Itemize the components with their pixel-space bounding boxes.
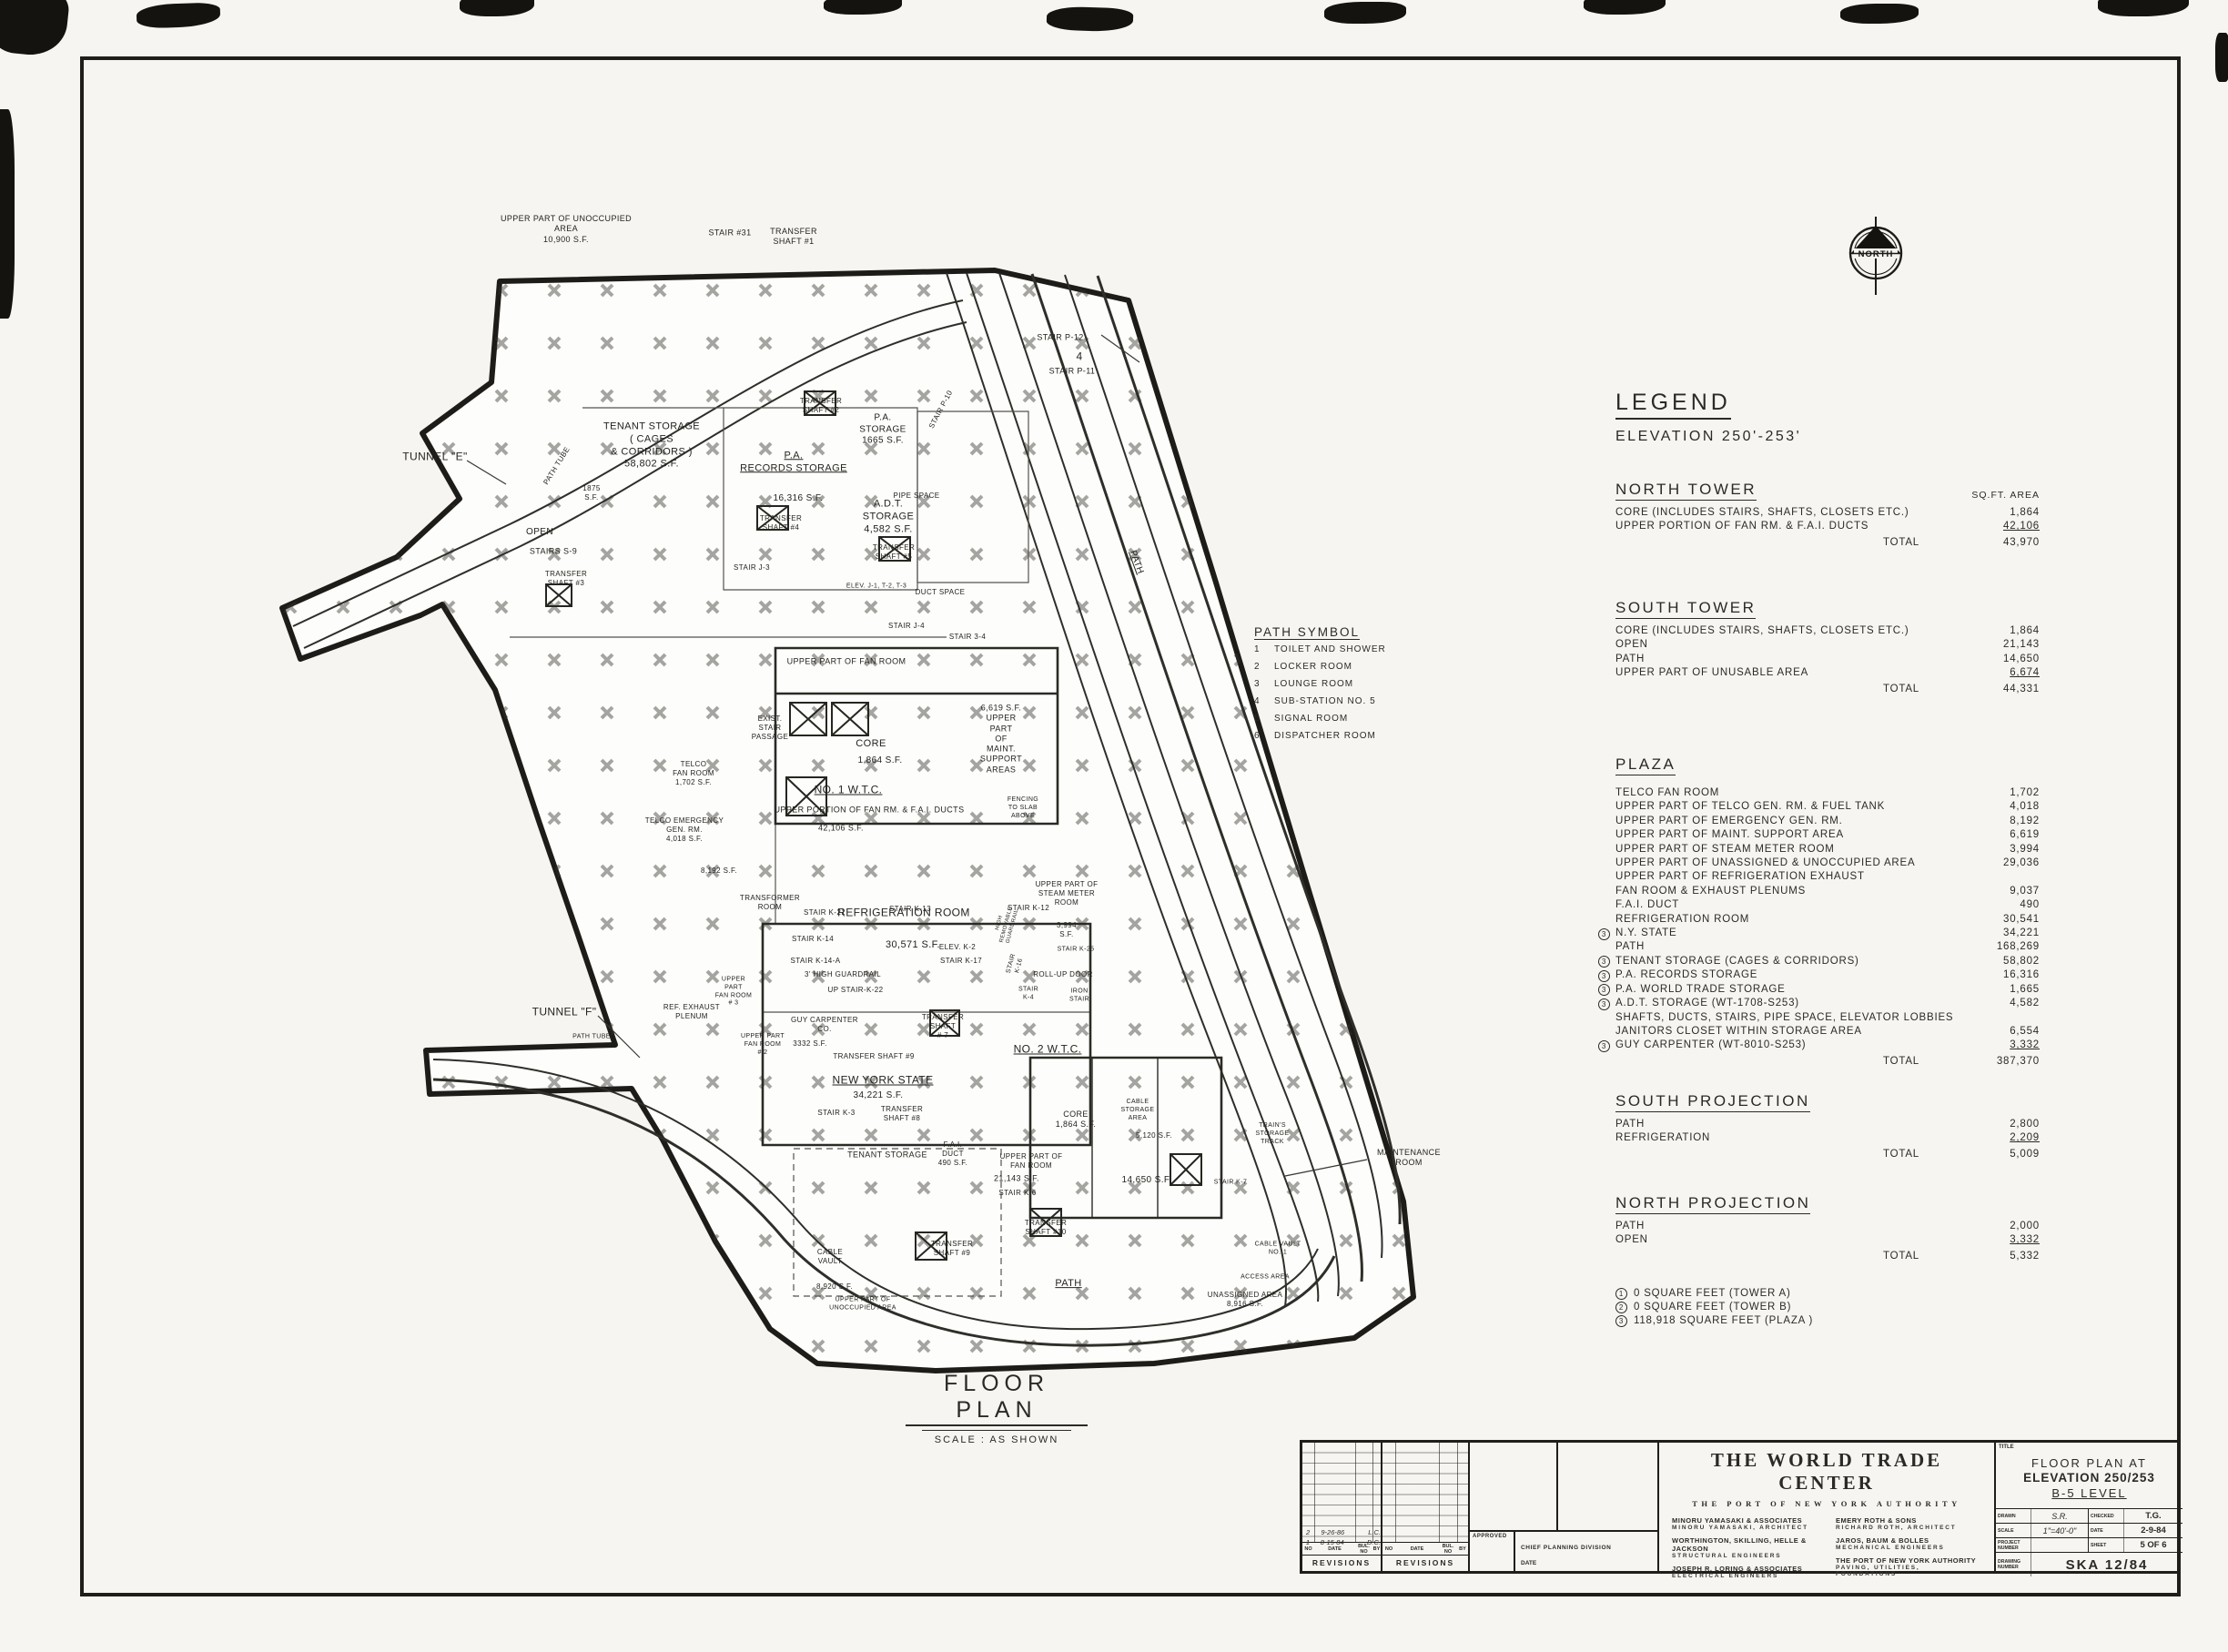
plan-label: TELCO EMERGENCY GEN. RM. 4,018 S.F. bbox=[645, 816, 724, 844]
plan-label: TENANT STORAGE ( CAGES & CORRIDORS ) 58,… bbox=[603, 421, 700, 471]
row-value: 6,554 bbox=[1961, 1025, 2040, 1039]
footnote: 2 0 SQUARE FEET (TOWER B) bbox=[1615, 1301, 2040, 1314]
row-value: 6,674 bbox=[1961, 666, 2040, 680]
plan-label: P.A. RECORDS STORAGE bbox=[740, 450, 847, 475]
legend-row: UPPER PART OF MAINT. SUPPORT AREA 6,619 bbox=[1615, 828, 2040, 842]
plan-label: TRANSFER SHAFT #2 bbox=[800, 397, 842, 415]
plan-label: 5,120 S.F. bbox=[1136, 1131, 1172, 1140]
row-label: UPPER PART OF UNASSIGNED & UNOCCUPIED AR… bbox=[1615, 856, 1961, 870]
row-label: GUY CARPENTER (WT-8010-S253) bbox=[1615, 1039, 1961, 1052]
plan-label: STAIR K-7 bbox=[1214, 1180, 1248, 1188]
row-value: 8,192 bbox=[1961, 815, 2040, 828]
path-symbol-number: 1 bbox=[1254, 642, 1274, 658]
row-label: A.D.T. STORAGE (WT-1708-S253) bbox=[1615, 997, 1961, 1010]
north-arrow-icon: NORTH bbox=[1842, 215, 1909, 299]
legend-row: JANITORS CLOSET WITHIN STORAGE AREA 6,55… bbox=[1615, 1025, 2040, 1039]
path-symbol-label: SUB-STATION NO. 5 bbox=[1274, 694, 1376, 710]
plan-label: UPPER PART FAN ROOM # 2 bbox=[741, 1033, 785, 1057]
legend-row: UPPER PART OF STEAM METER ROOM 3,994 bbox=[1615, 843, 2040, 856]
row-value: 3,332 bbox=[1961, 1233, 2040, 1247]
plan-label: F.A.I. DUCT 490 S.F. bbox=[938, 1140, 968, 1168]
row-value: 2,000 bbox=[1961, 1220, 2040, 1233]
legend-row: UPPER PART OF UNASSIGNED & UNOCCUPIED AR… bbox=[1615, 856, 2040, 870]
plan-label: TRANSFER SHAFT # 7 bbox=[922, 1013, 964, 1040]
project-authority: THE PORT OF NEW YORK AUTHORITY bbox=[1659, 1499, 1994, 1508]
row-value: 2,800 bbox=[1961, 1118, 2040, 1131]
legend: LEGEND ELEVATION 250'-253' NORTH TOWER S… bbox=[1615, 390, 2040, 445]
drawing-number: SKA 12/84 bbox=[2031, 1557, 2182, 1573]
row-label: TELCO FAN ROOM bbox=[1615, 786, 1961, 800]
legend-row: 3 P.A. RECORDS STORAGE 16,316 bbox=[1615, 968, 2040, 982]
north-arrow: NORTH bbox=[1842, 215, 1909, 303]
plan-label: OPEN bbox=[526, 527, 553, 539]
path-symbol-label: TOILET AND SHOWER bbox=[1274, 642, 1386, 658]
plan-label: TRANSFER SHAFT #10 bbox=[1025, 1219, 1067, 1237]
plan-label: STAIR K-17 bbox=[940, 957, 982, 966]
legend-row: UPPER PART OF TELCO GEN. RM. & FUEL TANK… bbox=[1615, 800, 2040, 814]
row-value: 1,665 bbox=[1961, 983, 2040, 997]
plan-label: TRANSFER SHAFT #4 bbox=[760, 514, 802, 532]
row-value: 1,702 bbox=[1961, 786, 2040, 800]
row-label: OPEN bbox=[1615, 1233, 1961, 1247]
area-header: SQ.FT. AREA bbox=[1971, 490, 2040, 501]
sheet-title-line3: B-5 LEVEL bbox=[1996, 1486, 2182, 1500]
plan-label: PATH TUBE bbox=[572, 1034, 611, 1042]
path-symbol-label: LOCKER ROOM bbox=[1274, 659, 1352, 675]
plan-label: UPPER PART OF UNOCCUPIED AREA 10,900 S.F… bbox=[501, 214, 632, 245]
plan-label: STAIRS S-9 bbox=[530, 546, 577, 556]
plan-label: TRANSFER SHAFT #5 bbox=[873, 543, 915, 562]
plan-label: REFRIGERATION ROOM bbox=[837, 907, 970, 920]
path-symbol-item: 1 TOILET AND SHOWER bbox=[1254, 642, 1386, 658]
legend-row: 3 A.D.T. STORAGE (WT-1708-S253) 4,582 bbox=[1615, 997, 2040, 1010]
footnote-marker: 3 bbox=[1598, 928, 1610, 940]
legend-section-south-tower: SOUTH TOWER CORE (INCLUDES STAIRS, SHAFT… bbox=[1615, 599, 2040, 694]
sheet-title-line2: ELEVATION 250/253 bbox=[1996, 1471, 2182, 1485]
path-symbol-label: LOUNGE ROOM bbox=[1274, 676, 1353, 693]
plan-label: STAIR 3-4 bbox=[949, 633, 986, 642]
plan-label: STAIR K-14 bbox=[792, 935, 834, 944]
row-label: UPPER PART OF MAINT. SUPPORT AREA bbox=[1615, 828, 1961, 842]
row-label: PATH bbox=[1615, 1220, 1961, 1233]
row-value bbox=[1961, 1011, 2040, 1025]
plan-label: MAINTENANCE ROOM bbox=[1377, 1148, 1441, 1169]
row-value: 490 bbox=[1961, 898, 2040, 912]
row-value: 21,143 bbox=[1961, 638, 2040, 652]
legend-row: PATH 2,000 bbox=[1615, 1220, 2040, 1233]
plan-label: IRON STAIR bbox=[1069, 988, 1089, 1004]
plan-label: DUCT SPACE bbox=[916, 588, 966, 597]
path-symbol-item: 6 DISPATCHER ROOM bbox=[1254, 728, 1386, 745]
approved-label: APPROVED bbox=[1473, 1534, 1507, 1539]
row-value: 1,864 bbox=[1961, 506, 2040, 520]
path-symbol-number: 2 bbox=[1254, 659, 1274, 675]
row-value: 4,582 bbox=[1961, 997, 2040, 1010]
plan-label: ELEV. K-2 bbox=[939, 943, 976, 952]
row-value: 2,209 bbox=[1961, 1131, 2040, 1145]
plan-label: P.A. STORAGE 1665 S.F. bbox=[859, 412, 906, 447]
plan-label: UNASSIGNED AREA 8,916 S.F. bbox=[1208, 1291, 1282, 1309]
section-heading: NORTH PROJECTION bbox=[1615, 1194, 1810, 1214]
plan-label: 3,994 S.F. bbox=[1057, 921, 1077, 939]
legend-row: UPPER PART OF REFRIGERATION EXHAUST bbox=[1615, 870, 2040, 884]
legend-row: TELCO FAN ROOM 1,702 bbox=[1615, 786, 2040, 800]
row-label: FAN ROOM & EXHAUST PLENUMS bbox=[1615, 885, 1961, 898]
row-label: PATH bbox=[1615, 940, 1961, 954]
approval-block: APPROVED CHIEF PLANNING DIVISION DATE bbox=[1470, 1443, 1659, 1571]
legend-title: LEGEND bbox=[1615, 390, 1731, 420]
plan-label: 14,650 S.F. bbox=[1122, 1175, 1172, 1187]
plan-label: TENANT STORAGE bbox=[847, 1150, 927, 1160]
footnote-number: 1 bbox=[1615, 1288, 1627, 1300]
legend-row: UPPER PART OF EMERGENCY GEN. RM. 8,192 bbox=[1615, 815, 2040, 828]
drawn-checked-row: DRAWN S.R. CHECKED T.G. bbox=[1996, 1508, 2182, 1523]
legend-row: OPEN 3,332 bbox=[1615, 1233, 2040, 1247]
plan-label: TRAIN'S STORAGE TRACK bbox=[1256, 1122, 1290, 1146]
plan-label: STAIR K-4 bbox=[1018, 986, 1038, 1002]
drawing-number-row: DRAWING NUMBER SKA 12/84 bbox=[1996, 1552, 2182, 1576]
legend-row: 3 N.Y. STATE 34,221 bbox=[1615, 927, 2040, 940]
row-label: UPPER PART OF UNUSABLE AREA bbox=[1615, 666, 1961, 680]
footnote-marker: 3 bbox=[1598, 1040, 1610, 1052]
floor-plan-title: FLOOR PLAN bbox=[906, 1371, 1088, 1426]
plan-label: TRANSFER SHAFT #1 bbox=[770, 227, 817, 248]
sheet-title-box: TITLE FLOOR PLAN AT ELEVATION 250/253 B-… bbox=[1996, 1443, 2182, 1571]
footnote: 3 118,918 SQUARE FEET (PLAZA ) bbox=[1615, 1314, 2040, 1328]
row-label: PATH bbox=[1615, 1118, 1961, 1131]
plan-label: PIPE SPACE bbox=[894, 492, 940, 501]
revisions-table-2: NO DATE BUL. NO BY REVISIONS bbox=[1382, 1443, 1470, 1571]
plan-label: CORE 1,864 S.F. bbox=[1056, 1110, 1097, 1130]
row-label: F.A.I. DUCT bbox=[1615, 898, 1961, 912]
revisions-table-1: 2 9-26-86 L.C. 1 8-15-84 D.C. NO DATE BU… bbox=[1302, 1443, 1382, 1571]
plan-label: PATH bbox=[1055, 1278, 1081, 1291]
row-value: 168,269 bbox=[1961, 940, 2040, 954]
legend-row: UPPER PORTION OF FAN RM. & F.A.I. DUCTS … bbox=[1615, 520, 2040, 533]
row-value: 1,864 bbox=[1961, 624, 2040, 638]
revision-row: 2 9-26-86 L.C. bbox=[1302, 1527, 1381, 1537]
plan-label: STAIR K-3 bbox=[817, 1109, 855, 1118]
row-value: 16,316 bbox=[1961, 968, 2040, 982]
plan-label: TRANSFORMER ROOM bbox=[740, 894, 800, 912]
plan-label: 42,106 S.F. bbox=[818, 823, 864, 833]
legend-section-south-projection: SOUTH PROJECTION PATH 2,800 REFRIGERATIO… bbox=[1615, 1092, 2040, 1160]
project-sheet-row: PROJECT NUMBER SHEET 5 OF 6 bbox=[1996, 1537, 2182, 1552]
plan-label: REF. EXHAUST PLENUM bbox=[663, 1003, 720, 1021]
footnote-text: 0 SQUARE FEET (TOWER A) bbox=[1634, 1287, 1791, 1301]
plan-label: TRANSFER SHAFT #3 bbox=[545, 570, 587, 588]
footnote-text: 0 SQUARE FEET (TOWER B) bbox=[1634, 1301, 1791, 1314]
path-symbol-item: 4 SUB-STATION NO. 5 bbox=[1254, 694, 1386, 710]
legend-section-north-tower: NORTH TOWER SQ.FT. AREA CORE (INCLUDES S… bbox=[1615, 481, 2040, 548]
plan-label: 8,192 S.F. bbox=[701, 867, 737, 876]
row-value: 34,221 bbox=[1961, 927, 2040, 940]
legend-section-plaza: PLAZA TELCO FAN ROOM 1,702 UPPER PART OF… bbox=[1615, 755, 2040, 1067]
chief-planning-label: CHIEF PLANNING DIVISION bbox=[1521, 1545, 1611, 1551]
path-symbol-number: 5 bbox=[1254, 711, 1274, 727]
revisions-label: REVISIONS bbox=[1382, 1555, 1468, 1571]
row-label: UPPER PART OF REFRIGERATION EXHAUST bbox=[1615, 870, 1961, 884]
row-label: UPPER PART OF STEAM METER ROOM bbox=[1615, 843, 1961, 856]
project-name: THE WORLD TRADE CENTER bbox=[1659, 1449, 1994, 1495]
revisions-label: REVISIONS bbox=[1302, 1555, 1381, 1571]
row-value: 42,106 bbox=[1961, 520, 2040, 533]
firms-column-left: MINORU YAMASAKI & ASSOCIATES MINORU YAMA… bbox=[1672, 1516, 1818, 1585]
plan-label: TRANSFER SHAFT #9 bbox=[931, 1240, 973, 1258]
row-label: JANITORS CLOSET WITHIN STORAGE AREA bbox=[1615, 1025, 1961, 1039]
row-label: UPPER PORTION OF FAN RM. & F.A.I. DUCTS bbox=[1615, 520, 1961, 533]
plan-label: NEW YORK STATE bbox=[833, 1074, 934, 1088]
approval-date-label: DATE bbox=[1521, 1560, 1536, 1566]
plan-label: 34,221 S.F. bbox=[854, 1090, 904, 1102]
plan-label: STAIR J-4 bbox=[888, 622, 925, 631]
plan-label: 4 bbox=[1076, 350, 1082, 364]
plan-label: TUNNEL "E" bbox=[402, 451, 467, 464]
section-total: TOTAL 44,331 bbox=[1615, 684, 2040, 694]
plan-label: 30,571 S.F. bbox=[886, 939, 940, 952]
title-block: 2 9-26-86 L.C. 1 8-15-84 D.C. NO DATE BU… bbox=[1300, 1440, 2180, 1574]
legend-row: CORE (INCLUDES STAIRS, SHAFTS, CLOSETS E… bbox=[1615, 506, 2040, 520]
plan-label: UPPER PART OF UNOCCUPIED AREA bbox=[829, 1296, 896, 1312]
plan-label: 3' HIGH GUARDRAIL bbox=[805, 970, 881, 979]
row-value: 3,332 bbox=[1961, 1039, 2040, 1052]
plan-label: UPPER PART OF STEAM METER ROOM bbox=[1036, 880, 1099, 907]
plan-label: UPPER PART OF FAN ROOM bbox=[787, 656, 906, 666]
row-label: UPPER PART OF EMERGENCY GEN. RM. bbox=[1615, 815, 1961, 828]
legend-subtitle: ELEVATION 250'-253' bbox=[1615, 429, 2040, 445]
row-value: 9,037 bbox=[1961, 885, 2040, 898]
floor-plan-scale: SCALE : AS SHOWN bbox=[906, 1434, 1088, 1445]
path-symbol-title: PATH SYMBOL bbox=[1254, 625, 1360, 640]
plan-label: GUY CARPENTER CO. bbox=[791, 1016, 858, 1034]
svg-text:NORTH: NORTH bbox=[1858, 249, 1894, 259]
plan-label: CABLE VAULT NO. 1 bbox=[1255, 1241, 1301, 1257]
footnote-number: 2 bbox=[1615, 1302, 1627, 1313]
row-value bbox=[1961, 870, 2040, 884]
section-total: TOTAL 5,332 bbox=[1615, 1251, 2040, 1262]
row-label: SHAFTS, DUCTS, STAIRS, PIPE SPACE, ELEVA… bbox=[1615, 1011, 1961, 1025]
path-symbol-item: 3 LOUNGE ROOM bbox=[1254, 676, 1386, 693]
plan-label: 6,619 S.F. UPPER PART OF MAINT. SUPPORT … bbox=[980, 704, 1022, 775]
legend-row: 3 GUY CARPENTER (WT-8010-S253) 3,332 bbox=[1615, 1039, 2040, 1052]
legend-row: PATH 14,650 bbox=[1615, 653, 2040, 666]
row-label: P.A. RECORDS STORAGE bbox=[1615, 968, 1961, 982]
plan-label: STAIR #31 bbox=[709, 228, 752, 238]
section-heading: SOUTH TOWER bbox=[1615, 599, 1756, 619]
legend-row: OPEN 21,143 bbox=[1615, 638, 2040, 652]
row-label: UPPER PART OF TELCO GEN. RM. & FUEL TANK bbox=[1615, 800, 1961, 814]
drawing-sheet: UPPER PART OF UNOCCUPIED AREA 10,900 S.F… bbox=[0, 0, 2228, 1652]
plan-label: 21,143 S.F. bbox=[994, 1173, 1039, 1183]
sheet-title-line1: FLOOR PLAN AT bbox=[1996, 1456, 2182, 1470]
revision-columns-header: NO DATE BUL. NO BY bbox=[1382, 1542, 1468, 1556]
row-label: N.Y. STATE bbox=[1615, 927, 1961, 940]
legend-row: REFRIGERATION ROOM 30,541 bbox=[1615, 913, 2040, 927]
legend-section-north-projection: NORTH PROJECTION PATH 2,000 OPEN 3,332 T… bbox=[1615, 1194, 2040, 1262]
plan-label: UPPER PART FAN ROOM # 3 bbox=[715, 977, 753, 1008]
path-symbol-item: 2 LOCKER ROOM bbox=[1254, 659, 1386, 675]
plan-label: 8,920 S.F. bbox=[816, 1282, 853, 1292]
section-heading: NORTH TOWER bbox=[1615, 481, 1757, 501]
path-symbol-number: 6 bbox=[1254, 728, 1274, 745]
plan-label: NO. 1 W.T.C. bbox=[815, 784, 883, 797]
path-symbol-number: 4 bbox=[1254, 694, 1274, 710]
path-symbol-label: SIGNAL ROOM bbox=[1274, 711, 1348, 727]
plan-label: TRANSFER SHAFT #9 bbox=[833, 1052, 914, 1061]
row-label: REFRIGERATION bbox=[1615, 1131, 1961, 1145]
plan-label: STAIR P-11 bbox=[1049, 366, 1096, 376]
revision-columns-header: NO DATE BUL. NO BY bbox=[1302, 1542, 1381, 1556]
footnote-text: 118,918 SQUARE FEET (PLAZA ) bbox=[1634, 1314, 1813, 1328]
section-heading: SOUTH PROJECTION bbox=[1615, 1092, 1810, 1112]
plan-label: A.D.T. STORAGE 4,582 S.F. bbox=[863, 498, 914, 535]
plan-label: STAIR K-6 bbox=[998, 1189, 1036, 1198]
row-label: CORE (INCLUDES STAIRS, SHAFTS, CLOSETS E… bbox=[1615, 506, 1961, 520]
plan-label: 1,864 S.F. bbox=[857, 755, 902, 767]
row-value: 3,994 bbox=[1961, 843, 2040, 856]
floor-plan-caption: FLOOR PLAN SCALE : AS SHOWN bbox=[906, 1371, 1088, 1445]
scale-date-row: SCALE 1"=40'-0" DATE 2-9-84 bbox=[1996, 1523, 2182, 1537]
row-label: REFRIGERATION ROOM bbox=[1615, 913, 1961, 927]
footnote-marker: 3 bbox=[1598, 998, 1610, 1010]
legend-row: PATH 2,800 bbox=[1615, 1118, 2040, 1131]
section-total: TOTAL 5,009 bbox=[1615, 1149, 2040, 1160]
legend-row: REFRIGERATION 2,209 bbox=[1615, 1131, 2040, 1145]
row-value: 58,802 bbox=[1961, 955, 2040, 968]
plan-label: STAIR K-25 bbox=[1058, 947, 1095, 955]
plan-label: 3332 S.F. bbox=[793, 1039, 826, 1049]
plan-label: CORE bbox=[856, 738, 886, 751]
legend-row: FAN ROOM & EXHAUST PLENUMS 9,037 bbox=[1615, 885, 2040, 898]
footnote-marker: 3 bbox=[1598, 970, 1610, 982]
title-label: TITLE bbox=[1999, 1444, 2014, 1450]
row-label: OPEN bbox=[1615, 638, 1961, 652]
row-label: TENANT STORAGE (CAGES & CORRIDORS) bbox=[1615, 955, 1961, 968]
plan-label: ROLL-UP DOOR bbox=[1033, 970, 1093, 979]
legend-row: 3 P.A. WORLD TRADE STORAGE 1,665 bbox=[1615, 983, 2040, 997]
plan-label: UPPER PART OF FAN ROOM bbox=[1000, 1152, 1063, 1171]
plan-label: TRANSFER SHAFT #8 bbox=[881, 1105, 923, 1123]
footnote-number: 3 bbox=[1615, 1315, 1627, 1327]
plan-label: NO. 2 W.T.C. bbox=[1014, 1043, 1082, 1057]
row-label: PATH bbox=[1615, 653, 1961, 666]
row-value: 4,018 bbox=[1961, 800, 2040, 814]
firms-column-right: EMERY ROTH & SONS RICHARD ROTH, ARCHITEC… bbox=[1836, 1516, 1981, 1585]
row-value: 14,650 bbox=[1961, 653, 2040, 666]
path-symbol-item: 5 SIGNAL ROOM bbox=[1254, 711, 1386, 727]
plan-label: CABLE VAULT bbox=[817, 1248, 843, 1266]
section-total: TOTAL 43,970 bbox=[1615, 537, 2040, 548]
plan-label: UP STAIR-K-22 bbox=[828, 986, 884, 995]
plan-label: STAIR J-3 bbox=[734, 563, 770, 573]
legend-row: F.A.I. DUCT 490 bbox=[1615, 898, 2040, 912]
path-symbol-label: DISPATCHER ROOM bbox=[1274, 728, 1376, 745]
row-label: CORE (INCLUDES STAIRS, SHAFTS, CLOSETS E… bbox=[1615, 624, 1961, 638]
plan-label: 1875 S.F. bbox=[582, 484, 600, 502]
plan-label: 16,316 S.F. bbox=[774, 493, 824, 505]
caption-underline bbox=[922, 1428, 1071, 1431]
legend-footnotes: 1 0 SQUARE FEET (TOWER A) 2 0 SQUARE FEE… bbox=[1615, 1287, 2040, 1328]
plan-label: ELEV. J-1, T-2, T-3 bbox=[846, 583, 906, 592]
section-total: TOTAL 387,370 bbox=[1615, 1056, 2040, 1067]
plan-label: FENCING TO SLAB ABOVE bbox=[1008, 796, 1038, 820]
plan-label: STAIR K-14-A bbox=[791, 957, 841, 966]
row-value: 30,541 bbox=[1961, 913, 2040, 927]
footnote: 1 0 SQUARE FEET (TOWER A) bbox=[1615, 1287, 2040, 1301]
path-symbol-list: 1 TOILET AND SHOWER 2 LOCKER ROOM 3 LOUN… bbox=[1254, 642, 1386, 745]
plan-label: ACCESS AREA bbox=[1241, 1274, 1290, 1282]
plan-label: CABLE STORAGE AREA bbox=[1121, 1099, 1155, 1122]
legend-row: CORE (INCLUDES STAIRS, SHAFTS, CLOSETS E… bbox=[1615, 624, 2040, 638]
legend-row: UPPER PART OF UNUSABLE AREA 6,674 bbox=[1615, 666, 2040, 680]
legend-row: SHAFTS, DUCTS, STAIRS, PIPE SPACE, ELEVA… bbox=[1615, 1011, 2040, 1025]
path-symbol-number: 3 bbox=[1254, 676, 1274, 693]
plan-label: TUNNEL "F" bbox=[532, 1006, 597, 1019]
legend-row: 3 TENANT STORAGE (CAGES & CORRIDORS) 58,… bbox=[1615, 955, 2040, 968]
path-symbol-key: PATH SYMBOL 1 TOILET AND SHOWER 2 LOCKER… bbox=[1254, 624, 1386, 745]
section-heading: PLAZA bbox=[1615, 755, 1676, 775]
row-label: P.A. WORLD TRADE STORAGE bbox=[1615, 983, 1961, 997]
plan-label: TELCO FAN ROOM 1,702 S.F. bbox=[673, 760, 714, 787]
row-value: 29,036 bbox=[1961, 856, 2040, 870]
plan-label: UPPER PORTION OF FAN RM. & F.A.I. DUCTS bbox=[775, 805, 965, 815]
plan-label: STAIR P-12 bbox=[1037, 332, 1083, 342]
row-value: 6,619 bbox=[1961, 828, 2040, 842]
legend-row: PATH 168,269 bbox=[1615, 940, 2040, 954]
project-identity-block: THE WORLD TRADE CENTER THE PORT OF NEW Y… bbox=[1659, 1443, 1996, 1571]
plan-label: EXIST. STAIR PASSAGE bbox=[752, 715, 788, 742]
